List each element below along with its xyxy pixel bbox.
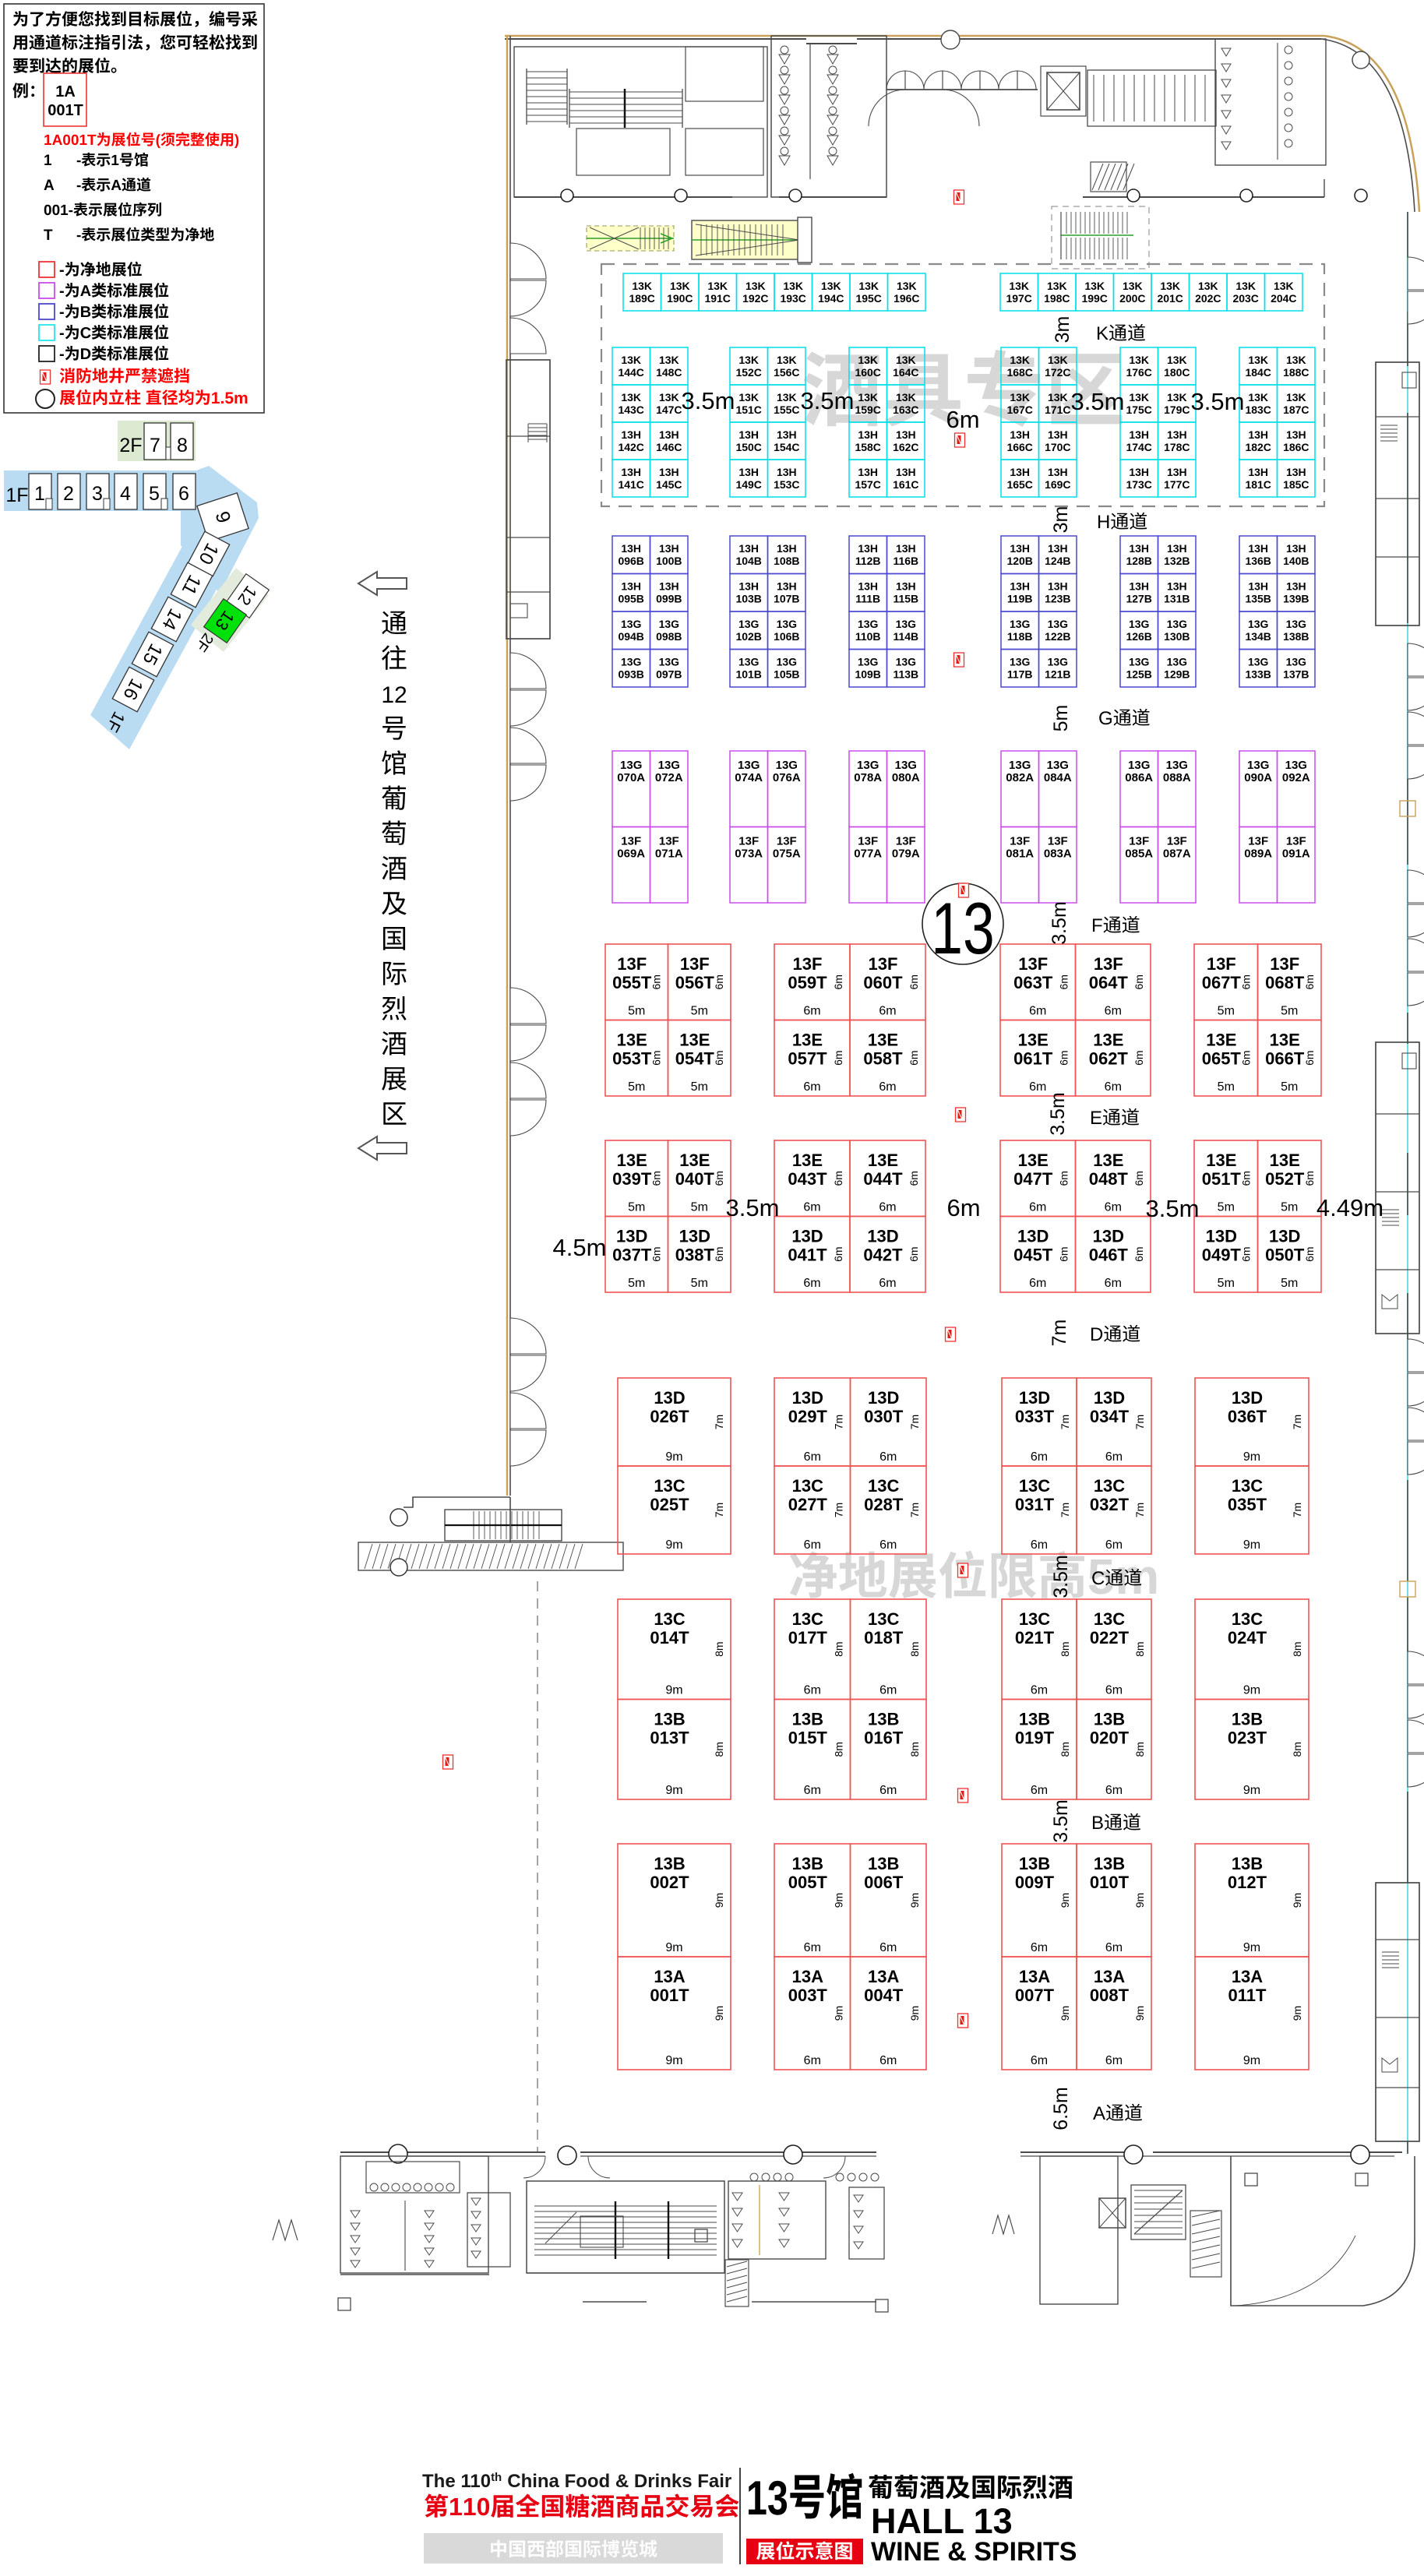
svg-text:102B: 102B xyxy=(735,630,761,643)
svg-text:13K: 13K xyxy=(621,354,641,366)
svg-text:146C: 146C xyxy=(656,441,682,453)
svg-text:8m: 8m xyxy=(1133,1641,1146,1656)
svg-text:177C: 177C xyxy=(1164,478,1190,491)
svg-text:6m: 6m xyxy=(879,1941,897,1954)
svg-text:1: 1 xyxy=(44,153,52,169)
svg-text:071A: 071A xyxy=(655,848,683,861)
svg-text:050T: 050T xyxy=(1265,1246,1305,1265)
svg-text:13H: 13H xyxy=(858,428,878,441)
svg-text:13H: 13H xyxy=(1248,428,1268,441)
svg-text:162C: 162C xyxy=(893,441,918,453)
svg-text:047T: 047T xyxy=(1013,1169,1053,1189)
svg-text:T: T xyxy=(44,227,53,244)
svg-text:13E: 13E xyxy=(1093,1031,1123,1050)
svg-text:13K: 13K xyxy=(632,280,652,292)
svg-text:13G: 13G xyxy=(1286,656,1307,668)
svg-text:6m: 6m xyxy=(1058,1050,1070,1065)
svg-text:13G: 13G xyxy=(858,656,879,668)
svg-text:005T: 005T xyxy=(788,1873,828,1892)
svg-text:8m: 8m xyxy=(1291,1641,1303,1656)
svg-text:9m: 9m xyxy=(908,1893,921,1908)
svg-text:13C: 13C xyxy=(792,1609,823,1629)
svg-text:054T: 054T xyxy=(675,1049,715,1069)
svg-text:170C: 170C xyxy=(1045,441,1070,453)
svg-text:13H: 13H xyxy=(1010,466,1030,478)
svg-text:161C: 161C xyxy=(893,478,918,491)
svg-text:13G: 13G xyxy=(738,618,760,630)
svg-text:144C: 144C xyxy=(618,366,643,379)
svg-text:9m: 9m xyxy=(665,1941,682,1954)
svg-text:178C: 178C xyxy=(1164,441,1190,453)
svg-text:5m: 5m xyxy=(628,1080,645,1094)
svg-text:5m: 5m xyxy=(628,1201,645,1214)
svg-text:6m: 6m xyxy=(804,1538,821,1552)
svg-text:7m: 7m xyxy=(833,1415,845,1429)
svg-text:3.5m: 3.5m xyxy=(1050,1555,1072,1598)
svg-text:13H: 13H xyxy=(738,466,759,478)
svg-text:5m: 5m xyxy=(1281,1080,1298,1094)
svg-text:6m: 6m xyxy=(879,1684,897,1697)
svg-text:13K: 13K xyxy=(1129,391,1149,403)
svg-text:180C: 180C xyxy=(1164,366,1190,379)
svg-text:13H: 13H xyxy=(1048,542,1068,555)
svg-text:159C: 159C xyxy=(855,403,880,416)
svg-text:13H: 13H xyxy=(777,580,797,593)
svg-text:7m: 7m xyxy=(1291,1415,1303,1429)
svg-text:13H: 13H xyxy=(1048,580,1068,593)
svg-text:5m: 5m xyxy=(1281,1201,1298,1214)
svg-text:6m: 6m xyxy=(879,1538,897,1552)
svg-text:13G: 13G xyxy=(1247,759,1269,772)
svg-text:116B: 116B xyxy=(893,555,918,567)
svg-text:017T: 017T xyxy=(788,1628,828,1647)
svg-text:13K: 13K xyxy=(783,280,803,292)
svg-text:007T: 007T xyxy=(1015,1986,1055,2005)
svg-text:13G: 13G xyxy=(1047,759,1069,772)
svg-text:013T: 013T xyxy=(650,1728,689,1748)
svg-text:044T: 044T xyxy=(863,1169,903,1189)
svg-text:13E: 13E xyxy=(617,1031,647,1050)
svg-text:13G: 13G xyxy=(776,759,798,772)
svg-text:5m: 5m xyxy=(628,1277,645,1290)
svg-text:13K: 13K xyxy=(707,280,728,292)
svg-text:13H: 13H xyxy=(858,580,878,593)
svg-text:201C: 201C xyxy=(1157,292,1183,305)
svg-text:13E: 13E xyxy=(1270,1031,1300,1050)
svg-text:13G: 13G xyxy=(777,618,798,630)
svg-text:13G: 13G xyxy=(1167,618,1188,630)
svg-text:182C: 182C xyxy=(1245,441,1271,453)
svg-text:9m: 9m xyxy=(1243,1941,1260,1954)
svg-text:13C: 13C xyxy=(1094,1476,1125,1496)
svg-text:13H: 13H xyxy=(896,466,916,478)
svg-text:13H: 13H xyxy=(738,580,759,593)
svg-text:13C: 13C xyxy=(1232,1609,1263,1629)
svg-text:9m: 9m xyxy=(1059,2006,1071,2021)
svg-text:035T: 035T xyxy=(1228,1495,1267,1514)
svg-text:122B: 122B xyxy=(1045,630,1070,643)
svg-text:7m: 7m xyxy=(1291,1503,1303,1517)
svg-text:8m: 8m xyxy=(1059,1641,1071,1656)
svg-text:13G: 13G xyxy=(896,618,917,630)
svg-text:13H: 13H xyxy=(621,580,641,593)
svg-text:090A: 090A xyxy=(1244,771,1272,784)
svg-text:3.5m: 3.5m xyxy=(1049,901,1070,945)
svg-text:6m: 6m xyxy=(1240,1050,1253,1065)
svg-text:189C: 189C xyxy=(629,292,654,305)
svg-text:143C: 143C xyxy=(618,403,643,416)
svg-text:13K: 13K xyxy=(1167,354,1187,366)
svg-text:186C: 186C xyxy=(1283,441,1309,453)
svg-text:148C: 148C xyxy=(656,366,682,379)
svg-text:195C: 195C xyxy=(855,292,881,305)
svg-text:13G: 13G xyxy=(1248,618,1269,630)
svg-text:9m: 9m xyxy=(1133,2006,1146,2021)
svg-text:6m: 6m xyxy=(832,1171,844,1186)
svg-text:13A: 13A xyxy=(868,1967,899,1986)
svg-text:113B: 113B xyxy=(893,668,918,681)
svg-text:6m: 6m xyxy=(1105,1277,1122,1290)
svg-text:7m: 7m xyxy=(908,1415,921,1429)
svg-text:13K: 13K xyxy=(1235,280,1256,292)
svg-text:068T: 068T xyxy=(1265,973,1305,992)
svg-text:13H: 13H xyxy=(1167,428,1187,441)
svg-text:6m: 6m xyxy=(1105,1450,1123,1464)
svg-text:151C: 151C xyxy=(735,403,761,416)
svg-text:13K: 13K xyxy=(777,354,797,366)
svg-text:6m: 6m xyxy=(1105,2054,1123,2067)
svg-text:074A: 074A xyxy=(735,771,763,784)
svg-text:136B: 136B xyxy=(1245,555,1271,567)
svg-text:6m: 6m xyxy=(803,1201,820,1214)
svg-text:13A: 13A xyxy=(1019,1967,1050,1986)
svg-text:9m: 9m xyxy=(1243,1450,1260,1464)
svg-text:13E: 13E xyxy=(1270,1151,1300,1170)
svg-text:13H: 13H xyxy=(1129,466,1149,478)
svg-text:004T: 004T xyxy=(864,1986,904,2005)
svg-text:6m: 6m xyxy=(1105,1784,1123,1797)
svg-text:13F: 13F xyxy=(1270,954,1299,974)
svg-text:13G: 13G xyxy=(659,618,680,630)
svg-text:6m: 6m xyxy=(908,1171,920,1186)
svg-text:6.5m: 6.5m xyxy=(1050,2087,1072,2130)
svg-text:5m: 5m xyxy=(1281,1005,1298,1018)
svg-text:13H: 13H xyxy=(659,580,679,593)
svg-text:13K: 13K xyxy=(1084,280,1105,292)
svg-text:198C: 198C xyxy=(1044,292,1070,305)
svg-text:6m: 6m xyxy=(1029,1080,1046,1094)
svg-text:101B: 101B xyxy=(735,668,761,681)
svg-text:075A: 075A xyxy=(773,848,801,861)
svg-text:3m: 3m xyxy=(1052,316,1073,344)
svg-text:3.5m: 3.5m xyxy=(1047,1092,1069,1136)
svg-text:069A: 069A xyxy=(617,848,645,861)
svg-text:12: 12 xyxy=(381,682,407,708)
svg-text:9m: 9m xyxy=(713,2006,725,2021)
svg-text:6m: 6m xyxy=(1303,1246,1316,1261)
svg-text:109B: 109B xyxy=(855,668,880,681)
svg-text:046T: 046T xyxy=(1089,1246,1129,1265)
svg-text:110B: 110B xyxy=(855,630,881,643)
svg-text:13H: 13H xyxy=(738,542,759,555)
svg-text:059T: 059T xyxy=(788,973,827,992)
svg-text:6m: 6m xyxy=(1133,1171,1145,1186)
svg-text:032T: 032T xyxy=(1090,1495,1130,1514)
svg-text:015T: 015T xyxy=(788,1728,828,1748)
svg-text:6m: 6m xyxy=(650,1171,663,1186)
svg-text:13H: 13H xyxy=(896,542,916,555)
svg-text:130B: 130B xyxy=(1164,630,1190,643)
svg-text:163C: 163C xyxy=(893,403,918,416)
svg-text:105B: 105B xyxy=(774,668,799,681)
svg-text:13G: 13G xyxy=(1167,656,1188,668)
svg-text:13H: 13H xyxy=(1129,580,1149,593)
svg-text:13K: 13K xyxy=(858,391,878,403)
svg-text:062T: 062T xyxy=(1089,1049,1129,1069)
svg-text:5m: 5m xyxy=(691,1201,708,1214)
svg-text:6m: 6m xyxy=(1133,1050,1145,1065)
svg-text:114B: 114B xyxy=(893,630,918,643)
svg-text:192C: 192C xyxy=(742,292,768,305)
svg-text:13G: 13G xyxy=(1010,656,1031,668)
svg-text:187C: 187C xyxy=(1283,403,1309,416)
svg-text:125B: 125B xyxy=(1126,668,1151,681)
svg-text:067T: 067T xyxy=(1202,973,1242,992)
svg-text:13K: 13K xyxy=(1198,280,1218,292)
svg-text:008T: 008T xyxy=(1090,1986,1130,2005)
svg-text:173C: 173C xyxy=(1126,478,1151,491)
svg-text:13G: 13G xyxy=(1166,759,1188,772)
svg-text:13F: 13F xyxy=(1129,835,1149,848)
svg-text:2: 2 xyxy=(63,483,74,505)
svg-text:13E: 13E xyxy=(1018,1151,1049,1170)
svg-text:6m: 6m xyxy=(804,1941,821,1954)
svg-text:191C: 191C xyxy=(704,292,730,305)
svg-text:174C: 174C xyxy=(1126,441,1151,453)
svg-text:164C: 164C xyxy=(893,366,918,379)
svg-text:9m: 9m xyxy=(833,2006,845,2021)
svg-text:9m: 9m xyxy=(713,1893,725,1908)
svg-text:020T: 020T xyxy=(1090,1728,1130,1748)
svg-text:13H: 13H xyxy=(1129,542,1149,555)
svg-text:9m: 9m xyxy=(665,1538,682,1552)
svg-text:13K: 13K xyxy=(621,391,641,403)
svg-text:7m: 7m xyxy=(1049,1320,1070,1347)
svg-text:13F: 13F xyxy=(777,835,797,848)
svg-text:043T: 043T xyxy=(788,1169,827,1189)
svg-text:13G: 13G xyxy=(1009,759,1031,772)
svg-text:13H: 13H xyxy=(621,542,641,555)
svg-text:165C: 165C xyxy=(1006,478,1032,491)
svg-text:13K: 13K xyxy=(1048,354,1068,366)
svg-text:13K: 13K xyxy=(1286,354,1306,366)
svg-text:7m: 7m xyxy=(1059,1415,1071,1429)
svg-text:13K: 13K xyxy=(1009,280,1029,292)
svg-text:200C: 200C xyxy=(1119,292,1145,305)
svg-text:8m: 8m xyxy=(1291,1742,1303,1757)
svg-text:133B: 133B xyxy=(1245,668,1271,681)
svg-text:13B: 13B xyxy=(792,1854,823,1873)
svg-text:13C: 13C xyxy=(654,1609,685,1629)
svg-text:014T: 014T xyxy=(650,1628,689,1647)
svg-text:139B: 139B xyxy=(1283,593,1309,605)
svg-text:149C: 149C xyxy=(735,478,761,491)
svg-text:160C: 160C xyxy=(855,366,880,379)
svg-text:5m: 5m xyxy=(1218,1005,1235,1018)
svg-text:6m: 6m xyxy=(879,1201,896,1214)
svg-text:175C: 175C xyxy=(1126,403,1151,416)
svg-text:141C: 141C xyxy=(618,478,643,491)
svg-text:9m: 9m xyxy=(908,2006,921,2021)
svg-text:179C: 179C xyxy=(1164,403,1190,416)
svg-text:4.5m: 4.5m xyxy=(553,1234,607,1261)
svg-text:13E: 13E xyxy=(1206,1031,1236,1050)
svg-text:064T: 064T xyxy=(1089,973,1129,992)
svg-text:6m: 6m xyxy=(803,1277,820,1290)
svg-text:010T: 010T xyxy=(1090,1873,1130,1892)
svg-text:9m: 9m xyxy=(1243,1684,1260,1697)
svg-text:6m: 6m xyxy=(1240,1246,1253,1261)
svg-text:126B: 126B xyxy=(1126,630,1151,643)
svg-text:001T: 001T xyxy=(48,102,83,119)
svg-text:13K: 13K xyxy=(738,354,759,366)
svg-text:13H: 13H xyxy=(659,428,679,441)
svg-text:052T: 052T xyxy=(1265,1169,1305,1189)
svg-text:6m: 6m xyxy=(713,1171,725,1186)
svg-text:012T: 012T xyxy=(1228,1873,1267,1892)
svg-text:13K: 13K xyxy=(1129,354,1149,366)
svg-text:193C: 193C xyxy=(780,292,805,305)
svg-text:13K: 13K xyxy=(1274,280,1294,292)
svg-text:13K: 13K xyxy=(896,391,916,403)
svg-text:6m: 6m xyxy=(804,1784,821,1797)
svg-text:13F: 13F xyxy=(659,835,679,848)
svg-text:168C: 168C xyxy=(1006,366,1032,379)
svg-text:037T: 037T xyxy=(612,1246,652,1265)
svg-text:8m: 8m xyxy=(713,1641,725,1656)
svg-text:13B: 13B xyxy=(1019,1854,1050,1873)
svg-text:176C: 176C xyxy=(1126,366,1151,379)
svg-text:095B: 095B xyxy=(618,593,643,605)
svg-text:6m: 6m xyxy=(1031,1450,1048,1464)
svg-text:001T: 001T xyxy=(650,1986,689,2005)
svg-text:13D: 13D xyxy=(654,1388,685,1408)
svg-text:9m: 9m xyxy=(1291,1893,1303,1908)
svg-text:5m: 5m xyxy=(691,1277,708,1290)
svg-text:13B: 13B xyxy=(1232,1710,1263,1729)
svg-text:002T: 002T xyxy=(650,1873,689,1892)
svg-text:025T: 025T xyxy=(650,1495,689,1514)
svg-text:1F: 1F xyxy=(5,485,28,506)
svg-text:13G: 13G xyxy=(1285,759,1307,772)
svg-text:6m: 6m xyxy=(832,1246,844,1261)
svg-text:150C: 150C xyxy=(735,441,761,453)
svg-text:13G: 13G xyxy=(738,656,760,668)
svg-text:6m: 6m xyxy=(1303,974,1316,989)
svg-text:13E: 13E xyxy=(679,1031,710,1050)
svg-text:13K: 13K xyxy=(1010,354,1030,366)
svg-text:13D: 13D xyxy=(1019,1388,1050,1408)
svg-text:9m: 9m xyxy=(1243,2054,1260,2067)
svg-text:120B: 120B xyxy=(1006,555,1032,567)
svg-text:13K: 13K xyxy=(659,354,679,366)
svg-text:038T: 038T xyxy=(675,1246,715,1265)
svg-text:6m: 6m xyxy=(803,1005,820,1018)
svg-text:6m: 6m xyxy=(1031,1684,1048,1697)
svg-text:184C: 184C xyxy=(1245,366,1271,379)
svg-text:060T: 060T xyxy=(863,973,903,992)
svg-text:6m: 6m xyxy=(879,1080,896,1094)
svg-text:6m: 6m xyxy=(650,1050,663,1065)
svg-text:13D: 13D xyxy=(867,1227,898,1246)
svg-text:9m: 9m xyxy=(665,1784,682,1797)
svg-text:4.49m: 4.49m xyxy=(1316,1194,1383,1221)
svg-text:13H: 13H xyxy=(1010,542,1030,555)
svg-text:6m: 6m xyxy=(1058,974,1070,989)
svg-text:029T: 029T xyxy=(788,1407,828,1426)
svg-text:13H: 13H xyxy=(1129,428,1149,441)
svg-text:9m: 9m xyxy=(833,1893,845,1908)
svg-text:7m: 7m xyxy=(1133,1415,1146,1429)
svg-text:13K: 13K xyxy=(738,391,759,403)
svg-text:13H: 13H xyxy=(1248,466,1268,478)
svg-text:13D: 13D xyxy=(1206,1227,1237,1246)
svg-text:034T: 034T xyxy=(1090,1407,1130,1426)
svg-text:13H: 13H xyxy=(858,466,878,478)
svg-text:13G: 13G xyxy=(620,759,642,772)
svg-text:131B: 131B xyxy=(1164,593,1190,605)
svg-text:3: 3 xyxy=(92,483,103,505)
svg-text:072A: 072A xyxy=(655,771,683,784)
svg-text:132B: 132B xyxy=(1164,555,1190,567)
svg-text:13K: 13K xyxy=(1123,280,1143,292)
svg-text:13H: 13H xyxy=(777,428,797,441)
svg-text:13F: 13F xyxy=(896,835,916,848)
svg-text:6m: 6m xyxy=(832,1050,844,1065)
svg-text:13D: 13D xyxy=(868,1388,899,1408)
svg-text:171C: 171C xyxy=(1045,403,1070,416)
svg-text:057T: 057T xyxy=(788,1049,827,1069)
svg-text:13K: 13K xyxy=(659,391,679,403)
svg-text:061T: 061T xyxy=(1013,1049,1053,1069)
svg-text:13G: 13G xyxy=(1129,618,1150,630)
svg-text:13K: 13K xyxy=(1160,280,1180,292)
svg-text:099B: 099B xyxy=(656,593,682,605)
svg-text:112B: 112B xyxy=(855,555,881,567)
svg-text:3m: 3m xyxy=(1050,506,1072,534)
svg-text:167C: 167C xyxy=(1006,403,1032,416)
svg-text:076A: 076A xyxy=(773,771,801,784)
svg-text:026T: 026T xyxy=(650,1407,689,1426)
svg-text:127B: 127B xyxy=(1126,593,1151,605)
svg-text:13F: 13F xyxy=(617,954,647,974)
svg-text:13E: 13E xyxy=(1206,1151,1236,1170)
svg-text:WINE & SPIRITS: WINE & SPIRITS xyxy=(871,2537,1077,2567)
svg-text:115B: 115B xyxy=(893,593,918,605)
svg-text:13H: 13H xyxy=(777,466,797,478)
svg-text:13H: 13H xyxy=(1167,542,1187,555)
svg-text:154C: 154C xyxy=(774,441,799,453)
svg-text:13G: 13G xyxy=(738,759,760,772)
svg-text:079A: 079A xyxy=(892,848,920,861)
svg-text:096B: 096B xyxy=(618,555,643,567)
svg-text:6m: 6m xyxy=(713,974,725,989)
svg-text:078A: 078A xyxy=(854,771,882,784)
svg-text:6m: 6m xyxy=(879,1784,897,1797)
svg-text:13H: 13H xyxy=(659,466,679,478)
svg-text:5: 5 xyxy=(149,483,160,505)
svg-text:13F: 13F xyxy=(1094,954,1123,974)
